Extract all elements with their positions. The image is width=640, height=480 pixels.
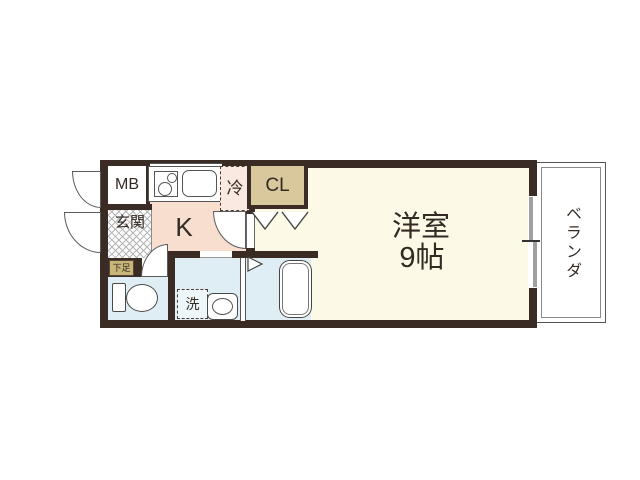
main-room-label: 洋室 xyxy=(381,212,461,242)
line-art xyxy=(0,0,640,480)
floor-plan: ベランダ 玄関 下足 MB 冷 CL 洗 xyxy=(0,0,640,480)
closet-folding-door-right xyxy=(282,212,308,229)
closet-folding-door-left xyxy=(252,212,278,229)
main-room-size-label: 9帖 xyxy=(382,243,462,273)
kitchen-label: K xyxy=(168,211,200,243)
bathroom-door-mark xyxy=(248,257,262,271)
